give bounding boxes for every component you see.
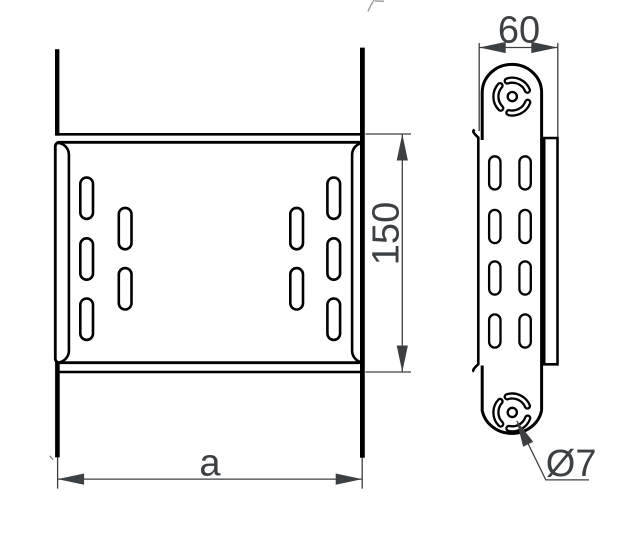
svg-text:a: a bbox=[199, 443, 221, 485]
svg-text:60: 60 bbox=[498, 10, 540, 52]
svg-text:Ø7: Ø7 bbox=[546, 443, 597, 485]
svg-text:150: 150 bbox=[365, 202, 407, 265]
